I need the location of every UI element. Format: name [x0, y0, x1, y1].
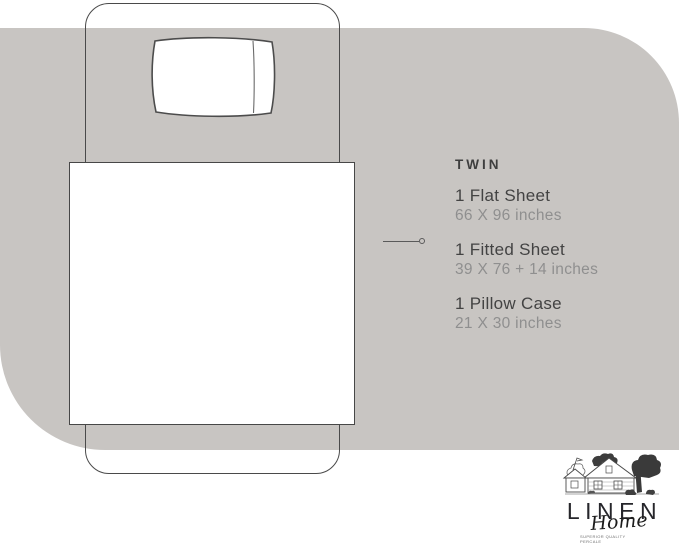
spec-item-fitted-sheet: 1 Fitted Sheet 39 X 76 + 14 inches [455, 240, 655, 279]
connector-dot [419, 238, 425, 244]
spec-dimensions: 66 X 96 inches [455, 207, 655, 225]
spec-item-flat-sheet: 1 Flat Sheet 66 X 96 inches [455, 186, 655, 225]
spec-list: TWIN 1 Flat Sheet 66 X 96 inches 1 Fitte… [455, 157, 655, 348]
pillow-illustration [145, 33, 281, 121]
brand-logo: LINEN Home SUPERIOR QUALITY PERCALE [552, 452, 672, 544]
infographic-canvas: TWIN 1 Flat Sheet 66 X 96 inches 1 Fitte… [0, 0, 679, 550]
spec-name: 1 Flat Sheet [455, 186, 655, 205]
flat-sheet-illustration [69, 162, 355, 425]
house-sketch-icon [562, 452, 662, 498]
spec-name: 1 Fitted Sheet [455, 240, 655, 259]
brand-tagline: SUPERIOR QUALITY PERCALE [580, 534, 672, 544]
connector-line [383, 241, 419, 242]
size-label: TWIN [455, 157, 655, 172]
brand-tagline-line2: PERCALE [580, 539, 672, 544]
spec-dimensions: 21 X 30 inches [455, 315, 655, 333]
spec-dimensions: 39 X 76 + 14 inches [455, 261, 655, 279]
spec-name: 1 Pillow Case [455, 294, 655, 313]
spec-item-pillow-case: 1 Pillow Case 21 X 30 inches [455, 294, 655, 333]
